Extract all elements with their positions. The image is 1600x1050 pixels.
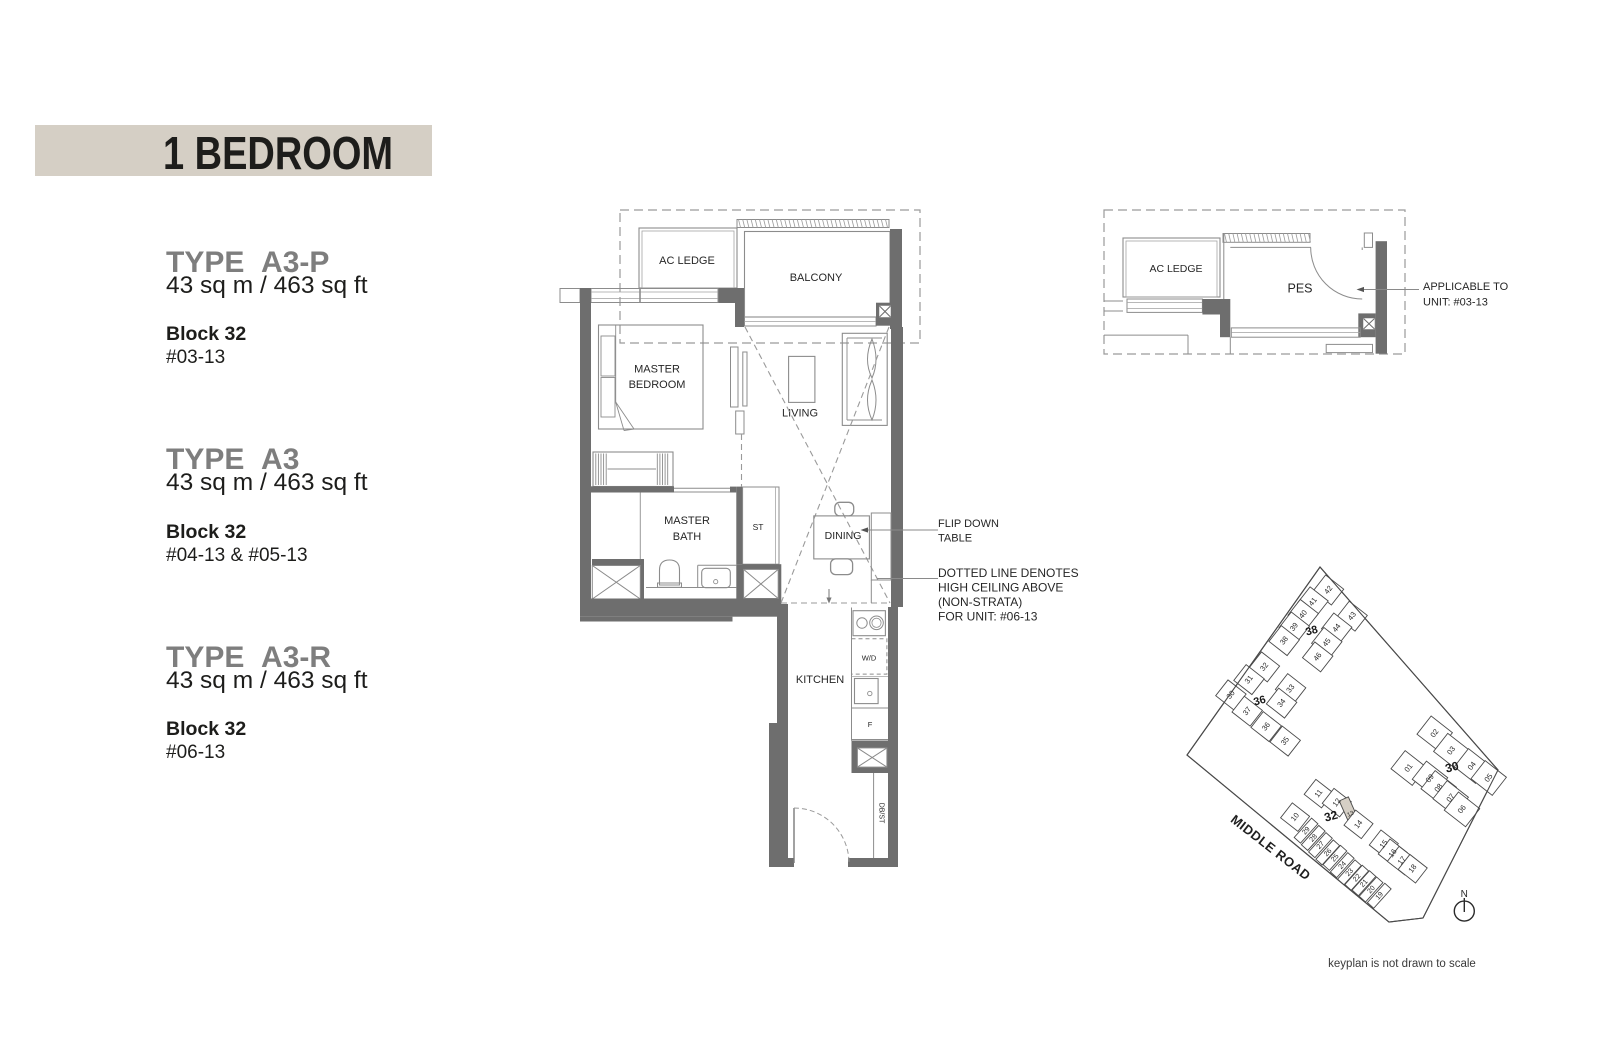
svg-text:AC LEDGE: AC LEDGE [659, 255, 715, 267]
svg-text:FOR UNIT: #06-13: FOR UNIT: #06-13 [938, 610, 1038, 624]
svg-text:#04-13 & #05-13: #04-13 & #05-13 [166, 545, 308, 566]
svg-text:F: F [868, 720, 873, 729]
svg-text:HIGH CEILING ABOVE: HIGH CEILING ABOVE [938, 581, 1063, 595]
svg-text:43 sq m / 463 sq ft: 43 sq m / 463 sq ft [166, 667, 368, 694]
svg-text:KITCHEN: KITCHEN [796, 674, 844, 686]
svg-text:AC LEDGE: AC LEDGE [1149, 263, 1202, 275]
svg-text:PES: PES [1287, 282, 1312, 296]
svg-text:DB/ST: DB/ST [878, 803, 885, 824]
svg-text:Block 32: Block 32 [166, 323, 246, 345]
svg-text:TABLE: TABLE [938, 533, 972, 545]
svg-text:Block 32: Block 32 [166, 718, 246, 740]
svg-text:UNIT: #03-13: UNIT: #03-13 [1423, 297, 1488, 309]
svg-text:BEDROOM: BEDROOM [629, 379, 686, 391]
svg-text:Block 32: Block 32 [166, 521, 246, 543]
svg-text:FLIP DOWN: FLIP DOWN [938, 518, 999, 530]
svg-text:keyplan is not drawn to scale: keyplan is not drawn to scale [1328, 958, 1476, 970]
svg-text:1 BEDROOM: 1 BEDROOM [163, 127, 393, 179]
svg-text:MASTER: MASTER [664, 515, 710, 527]
svg-text:DOTTED LINE DENOTES: DOTTED LINE DENOTES [938, 566, 1079, 580]
svg-text:ST: ST [753, 522, 764, 532]
svg-text:BATH: BATH [673, 531, 702, 543]
svg-text:W/D: W/D [862, 654, 877, 663]
svg-text:43 sq m / 463 sq ft: 43 sq m / 463 sq ft [166, 469, 368, 496]
svg-text:#06-13: #06-13 [166, 742, 225, 763]
svg-text:APPLICABLE TO: APPLICABLE TO [1423, 281, 1509, 293]
svg-text:(NON-STRATA): (NON-STRATA) [938, 595, 1022, 609]
svg-text:BALCONY: BALCONY [790, 272, 843, 284]
svg-text:DINING: DINING [825, 530, 862, 542]
svg-text:MASTER: MASTER [634, 364, 680, 376]
svg-text:#03-13: #03-13 [166, 347, 225, 368]
svg-text:43 sq m / 463 sq ft: 43 sq m / 463 sq ft [166, 272, 368, 299]
svg-text:N: N [1461, 889, 1468, 900]
svg-text:LIVING: LIVING [782, 408, 818, 420]
